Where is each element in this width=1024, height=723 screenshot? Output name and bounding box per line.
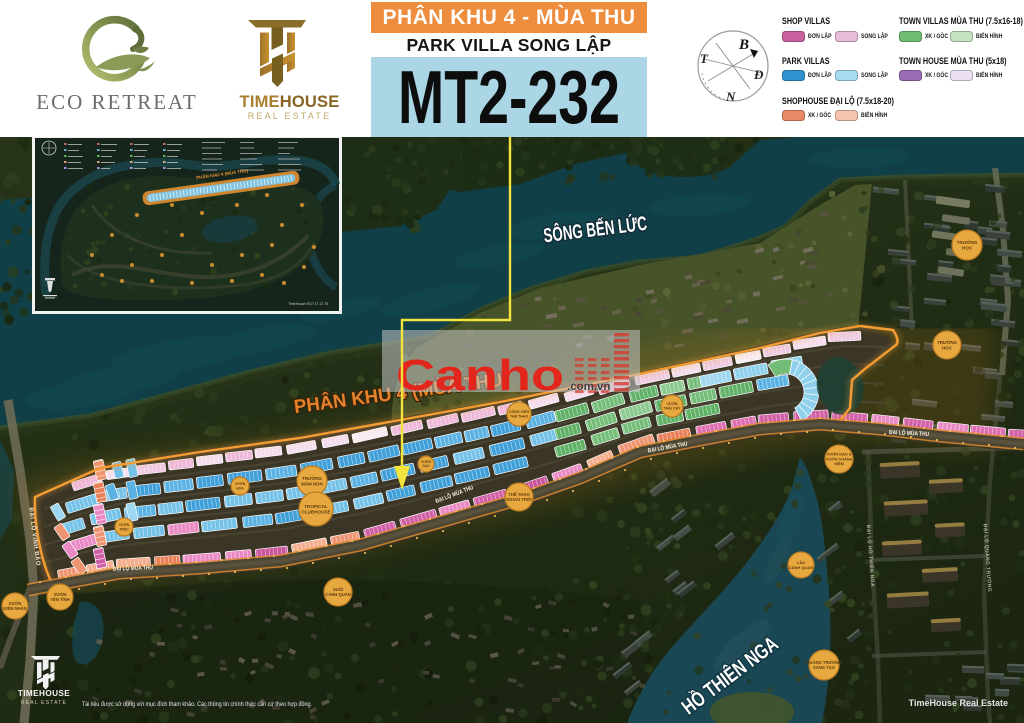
svg-text:B: B: [738, 37, 749, 53]
svg-text:CẢNH QUAN: CẢNH QUAN: [325, 592, 351, 597]
svg-text:TimeHouse Real Estate: TimeHouse Real Estate: [909, 698, 1008, 708]
svg-text:MT2-232: MT2-232: [398, 57, 620, 137]
svg-text:T: T: [700, 51, 709, 66]
svg-text:CLUBHOUSE: CLUBHOUSE: [301, 510, 330, 515]
svg-text:KIÊN NHẪN: KIÊN NHẪN: [3, 606, 26, 611]
svg-text:N: N: [725, 89, 736, 104]
svg-text:TRÁI CÂY: TRÁI CÂY: [664, 406, 682, 411]
svg-text:VƯỜN DẠO &: VƯỜN DẠO &: [827, 452, 852, 457]
svg-text:TRƯỜNG: TRƯỜNG: [937, 340, 957, 345]
svg-text:CẢNH QUAN: CẢNH QUAN: [789, 565, 814, 570]
svg-text:MẦM NON: MẦM NON: [301, 481, 322, 486]
svg-text:VƯỜN CHÁNH: VƯỜN CHÁNH: [826, 456, 853, 461]
svg-text:HOA: HOA: [236, 486, 244, 490]
svg-text:THỂ THAO: THỂ THAO: [510, 414, 529, 419]
svg-text:NIỆM: NIỆM: [834, 461, 844, 466]
svg-text:TRƯỜNG: TRƯỜNG: [302, 476, 322, 481]
svg-text:Canho: Canho: [396, 351, 564, 400]
svg-text:TROPICAL: TROPICAL: [304, 504, 328, 509]
svg-text:NGOÀI TRỜI: NGOÀI TRỜI: [506, 497, 531, 502]
svg-text:Tài liệu được sử dụng với mục: Tài liệu được sử dụng với mục đích tham …: [82, 699, 312, 708]
svg-text:TIMEHOUSE: TIMEHOUSE: [18, 689, 70, 698]
svg-text:DẠO: DẠO: [422, 464, 430, 468]
svg-text:Đ: Đ: [753, 67, 764, 82]
svg-text:TRƯỜNG: TRƯỜNG: [957, 238, 978, 245]
svg-text:YÊN TĨNH: YÊN TĨNH: [50, 597, 70, 602]
svg-text:TRÚC: TRÚC: [119, 526, 129, 531]
svg-text:REAL ESTATE: REAL ESTATE: [21, 700, 67, 706]
svg-text:SÁNG TẠO: SÁNG TẠO: [813, 665, 836, 670]
svg-text:TimeHouse 0917.17.17.76: TimeHouse 0917.17.17.76: [288, 302, 328, 306]
svg-text:.com.vn: .com.vn: [567, 381, 610, 393]
svg-text:CÔNG VIÊN: CÔNG VIÊN: [509, 409, 530, 414]
svg-text:HỌC: HỌC: [942, 345, 953, 350]
svg-text:HỌC: HỌC: [962, 246, 973, 251]
svg-text:VƯỜN: VƯỜN: [666, 401, 677, 406]
